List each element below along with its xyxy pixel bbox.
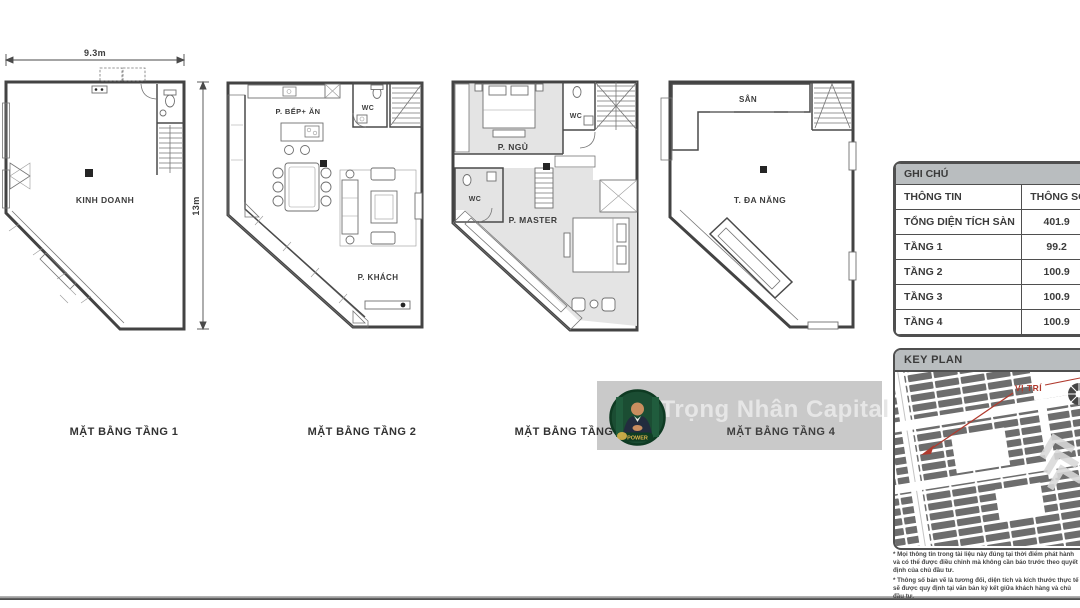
plan1-height-label: 13m [191,196,201,215]
plan2-column [320,160,327,167]
plan3-wc-top-label: WC [570,113,582,120]
disclaimer: * Mọi thông tin trong tài liệu này đúng … [893,551,1079,603]
row-label: TẦNG 2 [896,260,1022,285]
plan2-living-label: P. KHÁCH [358,273,399,282]
plan4-room-label: T. ĐA NĂNG [734,195,786,205]
plan4-drawing: SÂN T. ĐA NĂNG [660,72,865,352]
plan1-width-label: 9.3m [84,48,106,58]
table-row: TẦNG 4 100.9 [896,310,1080,335]
row-value: 100.9 [1022,285,1080,310]
plan3-master-label: P. MASTER [509,215,558,225]
row-label: TẦNG 1 [896,235,1022,260]
watermark-brand-text: Trọng Nhân Capital [660,396,890,424]
table-row: TẦNG 3 100.9 [896,285,1080,310]
legend-title: GHI CHÚ [896,164,1080,185]
row-label: TẦNG 3 [896,285,1022,310]
plan3-stairs [595,82,637,130]
plan2-dining-set [273,163,331,211]
key-plan-title: KEY PLAN [895,350,1080,372]
key-plan-map: VỊ TRÍ [895,372,1080,546]
plan3-bedroom-label: P. NGỦ [498,141,529,152]
plan1-caption: MẶT BẰNG TẦNG 1 [44,426,204,438]
plan1-column [85,169,93,177]
row-label: TẦNG 4 [896,310,1022,335]
disclaimer-line-1: * Mọi thông tin trong tài liệu này đúng … [893,551,1079,575]
plan2-kitchen-label: P. BẾP+ ĂN [276,106,321,116]
plan3-drawing: WC WC [445,68,645,363]
plan2-drawing: P. BẾP+ ĂN WC [225,65,435,360]
plan4-terrace-label: SÂN [739,95,757,104]
avatar-head [631,403,644,416]
key-plan: KEY PLAN [893,348,1080,550]
table-row: TỔNG DIỆN TÍCH SÀN 401.9 [896,210,1080,235]
row-value: 401.9 [1022,210,1080,235]
location-label: VỊ TRÍ [1015,383,1042,393]
floor-plan-2: P. BẾP+ ĂN WC [225,65,435,360]
floor-plan-3: WC WC [445,68,645,363]
watermark-avatar: POWER [609,389,666,446]
plan1-width-dimension: 9.3m [6,48,184,66]
floor-plan-4: SÂN T. ĐA NĂNG [660,72,865,352]
table-row: TẦNG 2 100.9 [896,260,1080,285]
avatar-banner-text: POWER [627,436,648,442]
plan3-column [543,163,550,170]
plan3-wc-left-label: WC [469,196,481,203]
plan1-drawing: 9.3m 13m [0,45,220,345]
plan4-column [760,166,767,173]
floor-plan-1: 9.3m 13m [0,45,220,345]
row-value: 99.2 [1022,235,1080,260]
legend-table: GHI CHÚ THÔNG TIN THÔNG SỐ (m²) TỔNG DIỆ… [893,161,1080,339]
plan4-caption: MẶT BẰNG TẦNG 4 [701,426,861,438]
plan1-height-dimension: 13m [191,82,209,329]
legend-col1-header: THÔNG TIN [896,185,1022,210]
legend-col2-header: THÔNG SỐ (m²) [1022,185,1080,210]
plan2-wc-label: WC [362,105,374,112]
avatar-lotus [617,432,627,440]
disclaimer-line-2: * Thông số bản vẽ là tương đối, diện tíc… [893,577,1079,601]
row-value: 100.9 [1022,310,1080,335]
row-value: 100.9 [1022,260,1080,285]
plan2-caption: MẶT BẰNG TẦNG 2 [282,426,442,438]
row-label: TỔNG DIỆN TÍCH SÀN [896,210,1022,235]
table-row: TẦNG 1 99.2 [896,235,1080,260]
plan3-master-bed [564,218,629,272]
plan1-room-label: KINH DOANH [76,195,134,205]
floorplan-sheet: 9.3m 13m [0,0,1080,608]
